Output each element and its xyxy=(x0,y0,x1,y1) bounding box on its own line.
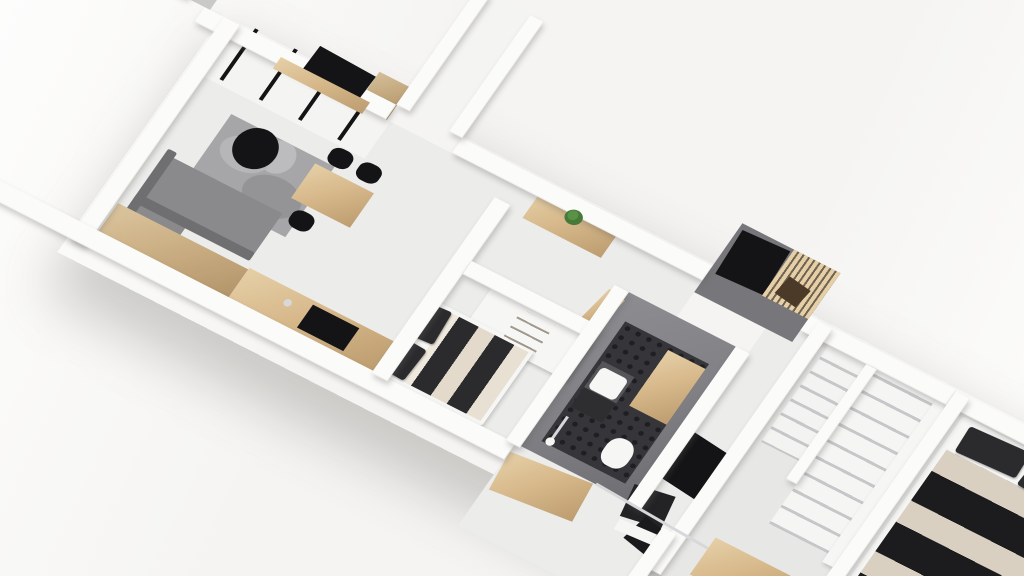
scene xyxy=(0,0,1024,576)
stub-corner-face xyxy=(187,0,249,10)
